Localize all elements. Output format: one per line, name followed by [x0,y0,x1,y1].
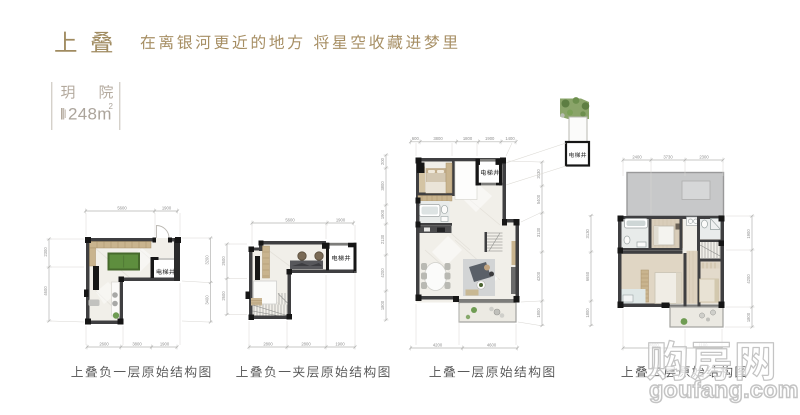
svg-text:2: 2 [109,102,114,111]
svg-text:5400: 5400 [536,194,541,204]
svg-text:2600: 2600 [221,256,226,266]
svg-text:4600: 4600 [487,342,497,347]
svg-text:1900: 1900 [160,341,170,346]
svg-text:1900: 1900 [336,217,346,222]
svg-text:4600: 4600 [43,286,48,296]
svg-text:4200: 4200 [433,342,443,347]
svg-text:4200: 4200 [380,268,385,278]
svg-text:3130: 3130 [536,227,541,237]
svg-text:3400: 3400 [205,295,210,305]
svg-text:1800: 1800 [380,300,385,310]
svg-text:3130: 3130 [585,228,590,238]
svg-text:4200: 4200 [746,274,751,284]
svg-text:2600: 2600 [99,341,109,346]
svg-text:248m: 248m [68,105,112,124]
svg-text:1900: 1900 [162,205,172,210]
svg-text:1800: 1800 [536,308,541,318]
svg-text:3800: 3800 [380,181,385,191]
svg-text:5600: 5600 [285,217,295,222]
svg-text:2130: 2130 [380,234,385,244]
svg-text:1800: 1800 [585,308,590,318]
svg-text:5600: 5600 [117,205,127,210]
svg-text:1800: 1800 [463,136,473,141]
svg-text:2300: 2300 [699,154,709,159]
svg-text:goufang.com: goufang.com [649,377,799,403]
svg-text:1400: 1400 [505,136,515,141]
svg-text:3730: 3730 [663,154,673,159]
svg-text:200: 200 [380,157,385,165]
svg-text:1900: 1900 [485,136,495,141]
svg-text:2400: 2400 [632,154,642,159]
svg-text:1900: 1900 [746,229,751,239]
svg-text:2600: 2600 [221,291,226,301]
svg-text:2800: 2800 [263,341,273,346]
svg-text:1900: 1900 [335,341,345,346]
svg-text:3800: 3800 [132,341,142,346]
svg-text:6650: 6650 [585,271,590,281]
svg-text:2030: 2030 [536,169,541,179]
svg-text:600: 600 [412,136,420,141]
svg-text:3800: 3800 [433,136,443,141]
svg-text:4200: 4200 [536,271,541,281]
svg-text:3200: 3200 [205,255,210,265]
svg-text:2300: 2300 [43,247,48,257]
svg-text:1900: 1900 [380,209,385,219]
svg-text:1800: 1800 [746,312,751,322]
svg-text:2800: 2800 [301,341,311,346]
